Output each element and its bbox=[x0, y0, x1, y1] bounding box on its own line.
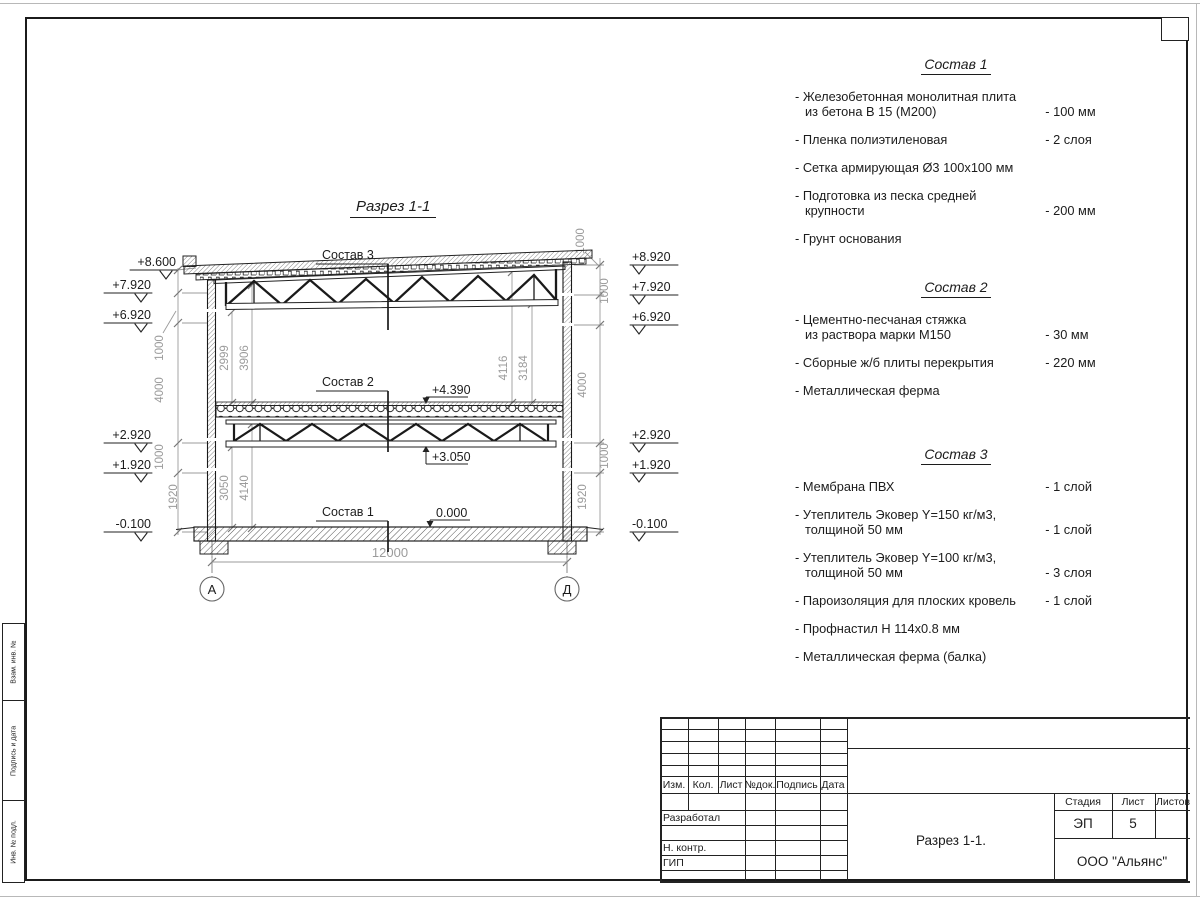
elev-8600: +8.600 bbox=[137, 255, 176, 269]
dim-right-4000: 4000 bbox=[577, 372, 589, 398]
elev-r2920: +2.920 bbox=[632, 428, 671, 442]
tb-role-gip: ГИП bbox=[663, 857, 684, 869]
elev-r0100: -0.100 bbox=[632, 517, 667, 531]
title-block: Изм. Кол. Лист №док. Подпись Дата Разраб… bbox=[660, 717, 1190, 883]
floor-truss-bottom-chord bbox=[226, 441, 556, 447]
composition-list-2: Состав 2 - Цементно-песчаная стяжка из р… bbox=[795, 280, 1117, 411]
list-item: - Металлическая ферма bbox=[795, 383, 1117, 398]
list-item: - Утеплитель Эковер Y=100 кг/м3, толщино… bbox=[795, 550, 1117, 580]
list-item: - Грунт основания bbox=[795, 231, 1117, 246]
dim-3050: 3050 bbox=[219, 475, 231, 501]
dim-right-1920: 1920 bbox=[577, 484, 589, 510]
wall-right bbox=[563, 262, 572, 541]
dim-right-1000c: 1000 bbox=[599, 443, 611, 469]
dim-span-12000: 12000 bbox=[372, 545, 408, 560]
list-item: - Утеплитель Эковер Y=150 кг/м3, толщино… bbox=[795, 507, 1117, 537]
elev-r7920: +7.920 bbox=[632, 280, 671, 294]
frame-label-vzam: Взам. инв. № bbox=[10, 640, 17, 683]
composition-1-title: Состав 1 bbox=[795, 57, 1117, 72]
tb-sheet-label: Лист bbox=[1122, 796, 1145, 808]
tb-header-kol: Кол. bbox=[693, 779, 714, 791]
section-view: 1000 4000 1000 1920 1000 1000 4000 1000 … bbox=[95, 195, 705, 625]
tb-doc-title: Разрез 1-1. bbox=[916, 833, 986, 848]
elev-l2920: +2.920 bbox=[112, 428, 151, 442]
grid-label-d: Д bbox=[563, 582, 572, 597]
tb-company: ООО "Альянс" bbox=[1077, 854, 1167, 869]
dim-left-1000b: 1000 bbox=[154, 444, 166, 470]
drawing-sheet: Взам. инв. № Подпись и дата Инв. № подл.… bbox=[0, 0, 1200, 900]
frame-box-vzam: Взам. инв. № bbox=[2, 623, 25, 701]
frame-box-inv: Инв. № подл. bbox=[2, 800, 25, 883]
tb-sheet-value: 5 bbox=[1129, 816, 1137, 831]
floor-truss-web bbox=[234, 424, 548, 441]
tb-role-razrabotal: Разработал bbox=[663, 812, 720, 824]
floor-truss-top-chord bbox=[226, 420, 556, 424]
tb-header-data: Дата bbox=[821, 779, 844, 791]
outer-border-right bbox=[1196, 3, 1197, 897]
corner-box bbox=[1161, 17, 1189, 41]
composition-2-title: Состав 2 bbox=[795, 280, 1117, 295]
wall-left bbox=[208, 280, 216, 541]
list-item: - Цементно-песчаная стяжка из раствора м… bbox=[795, 312, 1117, 342]
level-floor: 0.000 bbox=[436, 506, 467, 520]
list-item: - Мембрана ПВХ - 1 слой bbox=[795, 479, 1117, 494]
dim-4140: 4140 bbox=[239, 475, 251, 501]
list-item: - Металлическая ферма (балка) bbox=[795, 649, 1117, 664]
list-item: - Профнастил Н 114х0.8 мм bbox=[795, 621, 1117, 636]
elev-l6920: +6.920 bbox=[112, 308, 151, 322]
elev-8920: +8.920 bbox=[632, 250, 671, 264]
tb-stage-label: Стадия bbox=[1065, 796, 1101, 808]
list-item: - Железобетонная монолитная плита из бет… bbox=[795, 89, 1117, 119]
roof-parapet bbox=[183, 256, 196, 267]
tb-stage-value: ЭП bbox=[1073, 816, 1092, 831]
elev-r6920: +6.920 bbox=[632, 310, 671, 324]
tb-header-podpis: Подпись bbox=[776, 779, 818, 791]
callout-sostav3: Состав 3 bbox=[322, 248, 374, 262]
dim-right-1000b: 1000 bbox=[599, 278, 611, 304]
list-item: - Сетка армирующая Ø3 100х100 мм bbox=[795, 160, 1117, 175]
callout-sostav1: Состав 1 bbox=[322, 505, 374, 519]
frame-label-podpis: Подпись и дата bbox=[10, 725, 17, 775]
elev-l7920: +7.920 bbox=[112, 278, 151, 292]
structure bbox=[176, 250, 603, 554]
frame-box-podpis: Подпись и дата bbox=[2, 700, 25, 801]
list-item: - Пароизоляция для плоских кровель - 1 с… bbox=[795, 593, 1117, 608]
level-truss: +3.050 bbox=[432, 450, 471, 464]
tb-role-nkontr: Н. контр. bbox=[663, 842, 706, 854]
ground-slab bbox=[194, 527, 587, 541]
composition-list-3: Состав 3 - Мембрана ПВХ - 1 слой - Утепл… bbox=[795, 447, 1117, 677]
foundation-right bbox=[548, 541, 576, 554]
tb-header-ndok: №док. bbox=[745, 779, 776, 791]
elev-r1920: +1.920 bbox=[632, 458, 671, 472]
tb-header-list: Лист bbox=[720, 779, 743, 791]
dim-left-1920: 1920 bbox=[168, 484, 180, 510]
composition-3-title: Состав 3 bbox=[795, 447, 1117, 462]
outer-border-bottom bbox=[0, 896, 1200, 897]
dim-left-4000: 4000 bbox=[154, 377, 166, 403]
elevation-marks-right: +8.920 +7.920 +6.920 +2.920 +1.920 -0.10… bbox=[630, 250, 678, 541]
dim-3906: 3906 bbox=[239, 345, 251, 371]
dim-2999: 2999 bbox=[219, 345, 231, 371]
callout-sostav2: Состав 2 bbox=[322, 375, 374, 389]
floor-hollow-slab bbox=[216, 406, 563, 418]
elevation-marks-left: +8.600 +7.920 +6.920 +2.920 +1.920 -0.10… bbox=[104, 255, 177, 541]
list-item: - Сборные ж/б плиты перекрытия - 220 мм bbox=[795, 355, 1117, 370]
list-item: - Пленка полиэтиленовая - 2 слоя bbox=[795, 132, 1117, 147]
outer-border-top bbox=[0, 3, 1200, 4]
tb-header-izm: Изм. bbox=[663, 779, 686, 791]
elev-l0100: -0.100 bbox=[116, 517, 151, 531]
dim-3184: 3184 bbox=[518, 355, 530, 381]
grid-label-a: А bbox=[208, 582, 217, 597]
dim-4116: 4116 bbox=[498, 356, 510, 381]
composition-list-1: Состав 1 - Железобетонная монолитная пли… bbox=[795, 57, 1117, 259]
list-item: - Подготовка из песка средней крупности … bbox=[795, 188, 1117, 218]
frame-label-inv: Инв. № подл. bbox=[10, 820, 17, 864]
level-slab: +4.390 bbox=[432, 383, 471, 397]
floor-screed bbox=[216, 402, 563, 406]
foundation-left bbox=[200, 541, 228, 554]
elev-l1920: +1.920 bbox=[112, 458, 151, 472]
dim-left-1000a: 1000 bbox=[154, 335, 166, 361]
tb-sheets-label: Листов bbox=[1156, 796, 1190, 808]
